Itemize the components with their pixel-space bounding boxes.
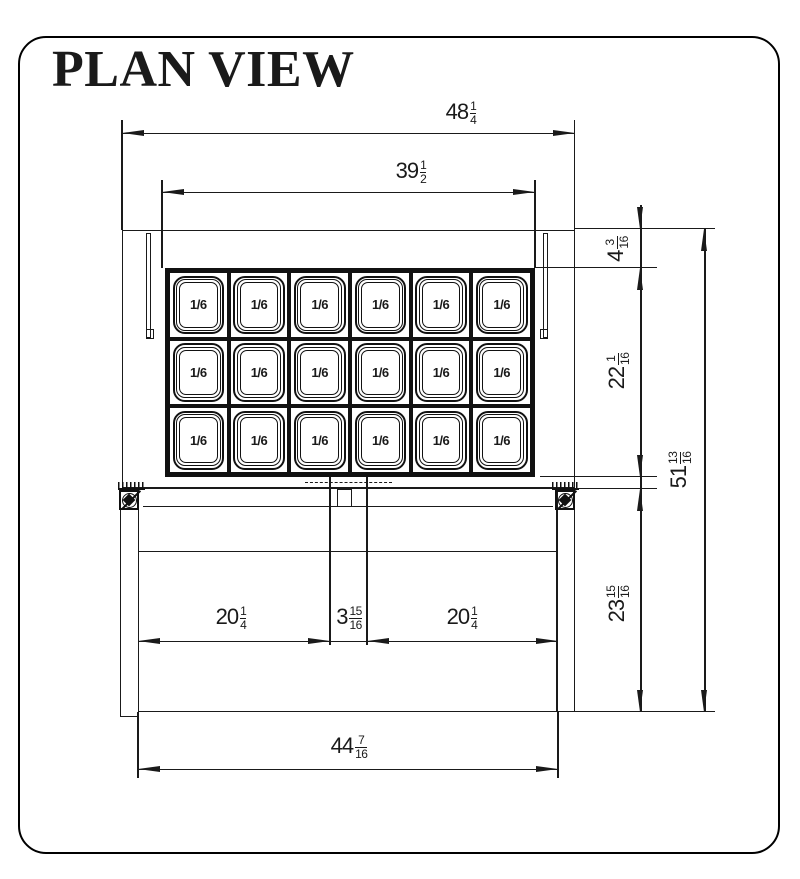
pan-size-label: 1/6 [352, 273, 409, 337]
pan-size-label: 1/6 [170, 341, 227, 405]
pan-cell: 1/6 [231, 408, 288, 472]
hidden-line [305, 482, 392, 483]
dim-label-center-divider: 3 1516 [324, 606, 374, 632]
pan-cell: 1/6 [170, 341, 227, 405]
arrowhead [162, 189, 184, 195]
pan-size-label: 1/6 [413, 341, 470, 405]
dimension-line-front-width [138, 769, 558, 770]
worktop-outline [138, 488, 558, 712]
pan-cell: 1/6 [231, 273, 288, 337]
pan-cell: 1/6 [473, 273, 530, 337]
right-side-panel [556, 488, 575, 712]
dimension-line-pan-rail-width [162, 192, 535, 193]
pan-size-label: 1/6 [231, 273, 288, 337]
extension-line [575, 228, 715, 229]
arrowhead [701, 690, 707, 712]
arrowhead [701, 229, 707, 251]
pan-cell: 1/6 [291, 408, 348, 472]
pan-cell: 1/6 [170, 408, 227, 472]
pan-size-label: 1/6 [352, 408, 409, 472]
pan-size-label: 1/6 [291, 408, 348, 472]
pan-size-label: 1/6 [473, 273, 530, 337]
extension-line [574, 120, 575, 230]
pan-size-label: 1/6 [352, 341, 409, 405]
dim-whole: 48 [446, 101, 468, 123]
dim-label-pan-rail-width: 39 12 [381, 160, 441, 186]
arrowhead [122, 130, 144, 136]
arrowhead [637, 455, 643, 477]
arrowhead [513, 189, 535, 195]
drawing-title: PLAN VIEW [52, 40, 355, 99]
dimension-line-doors [138, 641, 558, 642]
left-rail-bracket [146, 233, 151, 338]
pan-cell: 1/6 [352, 341, 409, 405]
pan-size-label: 1/6 [413, 273, 470, 337]
dim-label-rear-offset: 4 316 [605, 222, 631, 276]
dim-label-pan-section-depth: 22 116 [606, 338, 632, 404]
pan-cell: 1/6 [413, 273, 470, 337]
right-rail-bracket [543, 233, 548, 338]
drawing-sheet: PLAN VIEW 48 14 39 12 1/6 1/6 1/6 1/6 1/… [0, 0, 800, 879]
cutting-board-edge-line [138, 551, 558, 552]
pan-cell: 1/6 [291, 273, 348, 337]
pan-cell: 1/6 [352, 408, 409, 472]
arrowhead [637, 489, 643, 511]
pan-cell: 1/6 [473, 341, 530, 405]
pan-cell: 1/6 [473, 408, 530, 472]
left-latch-detail [119, 490, 139, 510]
pan-tray: 1/6 1/6 1/6 1/6 1/6 1/6 1/6 1/6 1/6 1/6 … [165, 268, 535, 477]
arrowhead [308, 638, 330, 644]
pan-size-label: 1/6 [291, 273, 348, 337]
pan-cell: 1/6 [291, 341, 348, 405]
dimension-line-overall-depth [704, 229, 705, 712]
dim-label-left-door: 20 14 [201, 606, 261, 632]
pan-size-label: 1/6 [170, 408, 227, 472]
pan-size-label: 1/6 [231, 341, 288, 405]
arrowhead [138, 638, 160, 644]
pan-cell: 1/6 [413, 408, 470, 472]
dim-label-front-width: 44 716 [316, 735, 382, 761]
dim-label-overall-depth: 51 1316 [668, 434, 694, 506]
pan-size-label: 1/6 [473, 341, 530, 405]
arrowhead [536, 638, 558, 644]
dimension-line-overall-width [122, 133, 575, 134]
dim-label-overall-width: 48 14 [431, 101, 491, 127]
dim-label-front-section-depth: 23 1516 [606, 568, 632, 640]
arrowhead [637, 268, 643, 290]
pan-cell: 1/6 [170, 273, 227, 337]
extension-line [121, 120, 122, 230]
arrowhead [637, 207, 643, 229]
arrowhead [637, 690, 643, 712]
pan-cell: 1/6 [231, 341, 288, 405]
left-latch-hatch [118, 482, 145, 490]
left-rail-bracket-foot [146, 329, 154, 339]
pan-cell: 1/6 [413, 341, 470, 405]
rail-front-edge-line [143, 506, 553, 507]
pan-size-label: 1/6 [291, 341, 348, 405]
arrowhead [367, 638, 389, 644]
pan-cell: 1/6 [352, 273, 409, 337]
dim-fraction: 14 [470, 100, 476, 127]
pan-size-label: 1/6 [231, 408, 288, 472]
pan-size-label: 1/6 [473, 408, 530, 472]
left-side-panel [120, 488, 139, 717]
extension-line [575, 488, 657, 489]
arrowhead [536, 766, 558, 772]
dim-label-right-door: 20 14 [432, 606, 492, 632]
arrowhead [138, 766, 160, 772]
pan-size-label: 1/6 [413, 408, 470, 472]
arrowhead [553, 130, 575, 136]
right-rail-bracket-foot [540, 329, 548, 339]
pan-size-label: 1/6 [170, 273, 227, 337]
right-latch-detail [555, 490, 575, 510]
